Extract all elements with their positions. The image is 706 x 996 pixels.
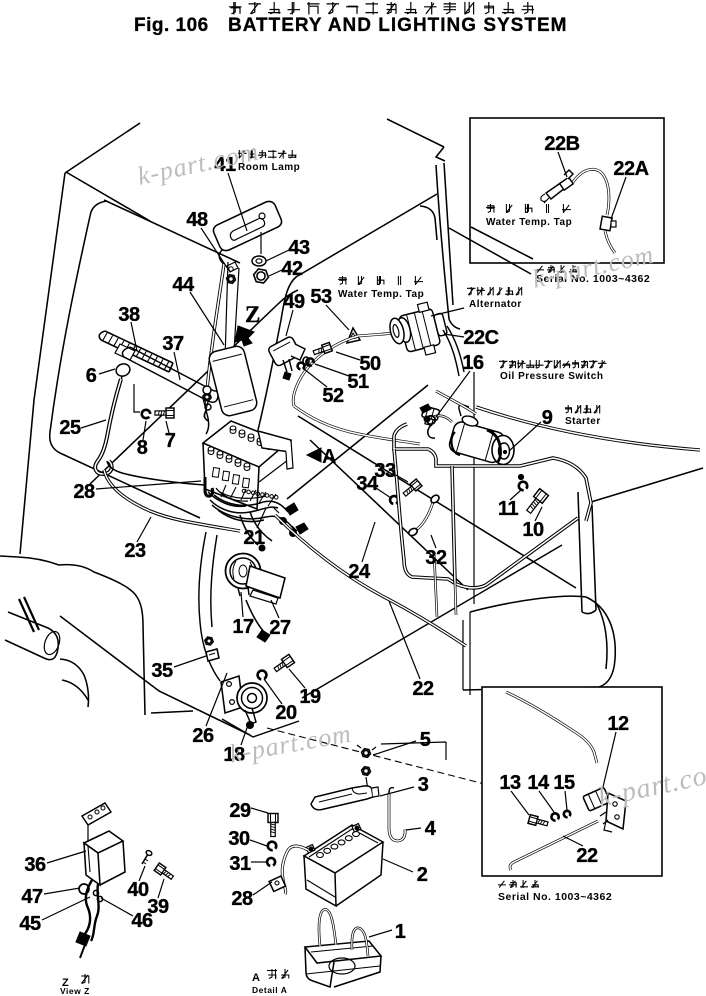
svg-text:13: 13 (499, 772, 521, 794)
svg-text:7: 7 (165, 430, 176, 452)
svg-text:BATTERY AND LIGHTING SYSTEM: BATTERY AND LIGHTING SYSTEM (228, 15, 567, 36)
svg-text:Water Temp. Tap: Water Temp. Tap (486, 217, 572, 228)
svg-text:20: 20 (275, 702, 297, 724)
svg-text:32: 32 (425, 547, 447, 569)
svg-text:25: 25 (59, 417, 81, 439)
svg-text:12: 12 (607, 713, 629, 735)
svg-text:9: 9 (542, 407, 553, 429)
svg-text:28: 28 (73, 481, 95, 503)
svg-text:5: 5 (420, 729, 431, 751)
svg-text:24: 24 (348, 561, 371, 583)
svg-text:A: A (252, 972, 260, 984)
svg-text:22: 22 (576, 845, 598, 867)
svg-text:8: 8 (137, 437, 148, 459)
svg-text:Starter: Starter (565, 416, 601, 427)
svg-text:21: 21 (243, 527, 265, 549)
svg-text:47: 47 (21, 886, 43, 908)
svg-text:4: 4 (425, 818, 437, 840)
svg-text:3: 3 (418, 774, 429, 796)
svg-text:14: 14 (527, 772, 550, 794)
svg-text:Oil Pressure Switch: Oil Pressure Switch (500, 371, 603, 382)
svg-text:22C: 22C (463, 327, 498, 349)
svg-text:53: 53 (310, 286, 332, 308)
svg-text:A: A (322, 446, 336, 468)
svg-text:22B: 22B (544, 133, 579, 155)
svg-text:15: 15 (553, 772, 575, 794)
svg-text:43: 43 (288, 237, 310, 259)
svg-text:52: 52 (322, 385, 344, 407)
svg-text:19: 19 (299, 686, 321, 708)
svg-text:30: 30 (228, 828, 250, 850)
svg-text:36: 36 (24, 854, 46, 876)
svg-text:38: 38 (118, 304, 140, 326)
svg-text:View Z: View Z (60, 986, 90, 996)
svg-text:11: 11 (498, 498, 519, 520)
svg-text:45: 45 (19, 913, 41, 935)
svg-text:28: 28 (231, 888, 253, 910)
svg-text:27: 27 (269, 617, 291, 639)
svg-text:Z: Z (245, 302, 260, 327)
svg-text:51: 51 (347, 371, 369, 393)
svg-text:6: 6 (86, 365, 97, 387)
svg-text:26: 26 (192, 725, 214, 747)
svg-text:29: 29 (229, 800, 251, 822)
svg-text:22: 22 (412, 678, 434, 700)
svg-text:Serial No. 1003~4362: Serial No. 1003~4362 (498, 891, 612, 903)
svg-text:Fig. 106: Fig. 106 (134, 15, 209, 36)
svg-text:Detail A: Detail A (252, 985, 287, 995)
svg-text:2: 2 (417, 864, 428, 886)
svg-text:Water Temp. Tap: Water Temp. Tap (338, 289, 424, 300)
svg-text:40: 40 (127, 879, 149, 901)
svg-text:46: 46 (131, 910, 153, 932)
svg-text:31: 31 (229, 853, 251, 875)
svg-text:44: 44 (172, 274, 195, 296)
svg-text:17: 17 (232, 616, 254, 638)
svg-text:23: 23 (124, 540, 146, 562)
svg-text:37: 37 (162, 333, 184, 355)
svg-text:35: 35 (151, 660, 173, 682)
svg-text:49: 49 (283, 291, 305, 313)
svg-text:22A: 22A (613, 158, 648, 180)
svg-text:10: 10 (522, 519, 544, 541)
svg-text:42: 42 (281, 258, 303, 280)
svg-text:48: 48 (186, 209, 208, 231)
svg-text:34: 34 (356, 473, 379, 495)
svg-text:1: 1 (395, 921, 406, 943)
svg-text:16: 16 (462, 352, 484, 374)
svg-text:Alternator: Alternator (469, 299, 522, 310)
